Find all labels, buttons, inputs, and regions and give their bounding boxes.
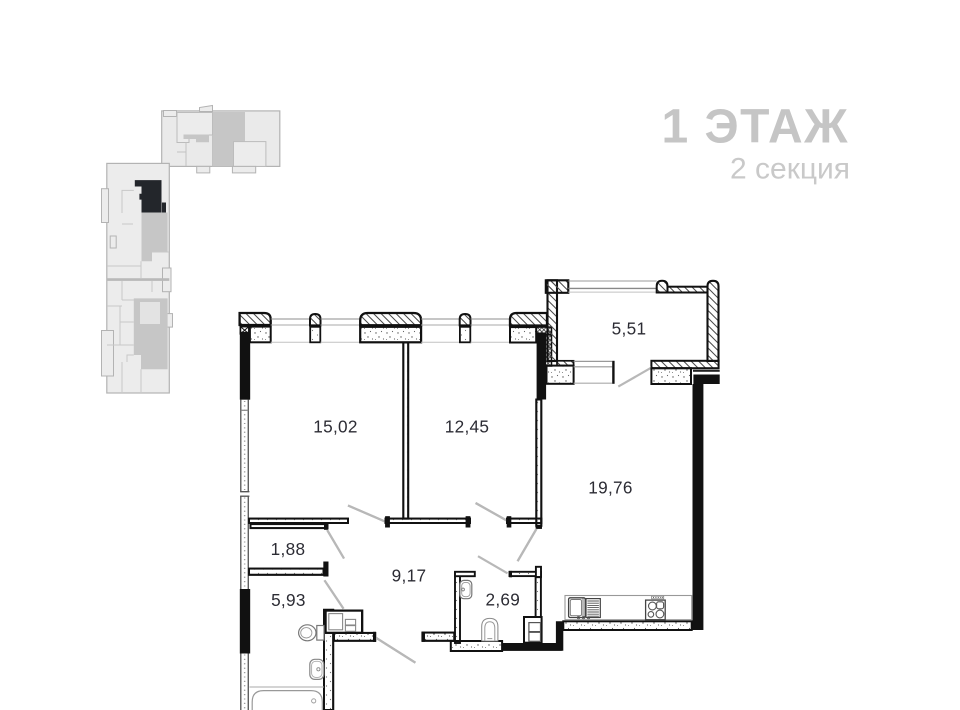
svg-text:2,69: 2,69 [485, 590, 520, 610]
svg-text:12,45: 12,45 [445, 417, 490, 437]
svg-text:9,17: 9,17 [392, 565, 427, 585]
svg-text:19,76: 19,76 [588, 477, 633, 497]
svg-text:2 секция: 2 секция [730, 152, 850, 185]
svg-text:1 ЭТАЖ: 1 ЭТАЖ [661, 101, 849, 154]
svg-text:5,51: 5,51 [612, 319, 647, 339]
svg-text:1,88: 1,88 [271, 539, 306, 559]
svg-text:15,02: 15,02 [313, 417, 358, 437]
svg-text:5,93: 5,93 [271, 590, 306, 610]
